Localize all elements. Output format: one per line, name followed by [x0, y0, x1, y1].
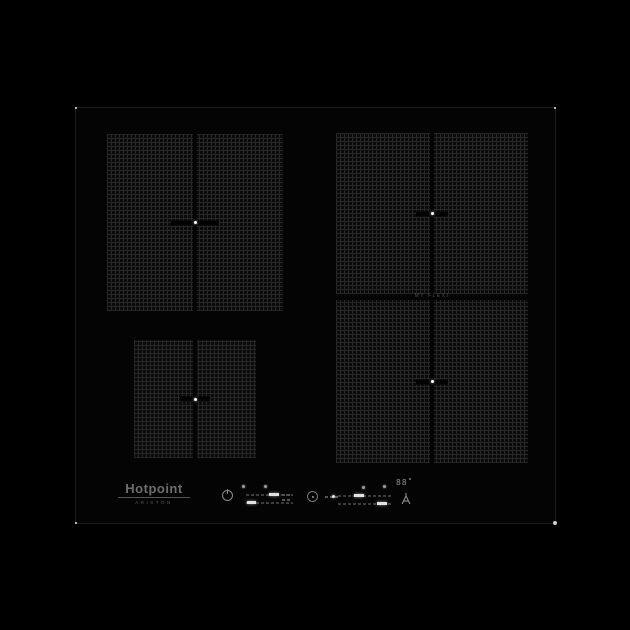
lock-icon[interactable] [401, 492, 411, 504]
indicator-led [264, 485, 267, 488]
touch-control-panel: 88 [76, 108, 557, 525]
slider-front-left[interactable] [246, 502, 293, 504]
power-icon[interactable] [222, 490, 233, 501]
slider-level-segment [247, 501, 256, 504]
timer-display: 88 [396, 478, 411, 487]
slider-level-segment [377, 502, 387, 505]
slider-front-right[interactable] [338, 503, 393, 505]
slider-level-segment [354, 494, 364, 497]
minus-dashes-icon[interactable] [282, 494, 291, 496]
slider-rear-right[interactable] [338, 495, 393, 497]
clock-icon[interactable] [307, 491, 318, 502]
minus-dashes-icon[interactable] [282, 499, 291, 501]
slider-level-segment [269, 493, 279, 496]
indicator-led [362, 486, 365, 489]
indicator-led [242, 485, 245, 488]
induction-hob-glass: MY FLEXI Hotpoint ARISTON [75, 107, 556, 524]
product-photo-canvas: MY FLEXI Hotpoint ARISTON [0, 0, 630, 630]
boost-indicator-dot [332, 495, 335, 498]
indicator-led [383, 485, 386, 488]
